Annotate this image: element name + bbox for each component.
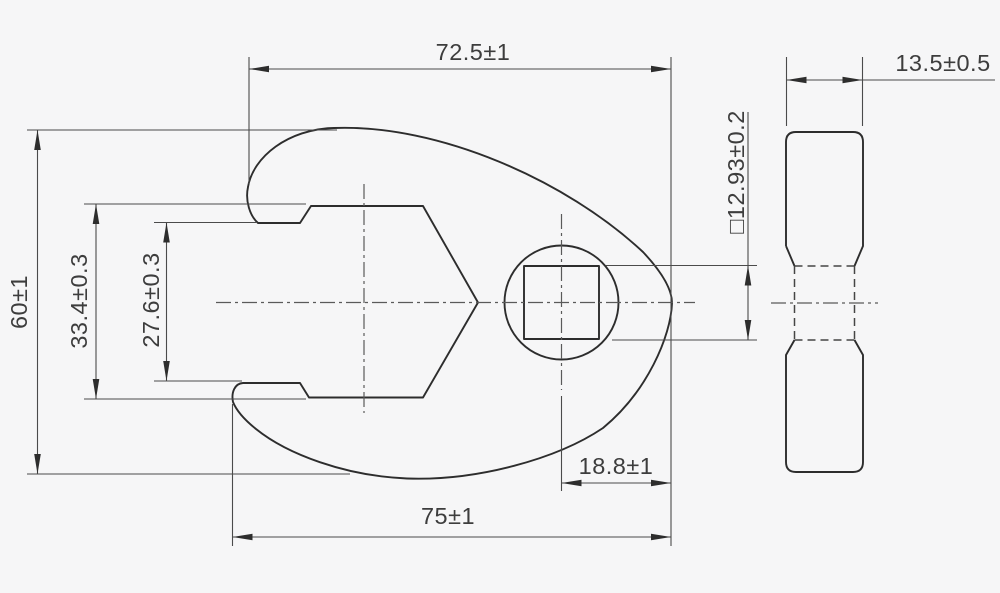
arrowhead-left: [787, 77, 807, 83]
dim-label-jaw-opening-wide: 33.4±0.3: [66, 253, 92, 348]
crowfoot-wrench-drawing: 72.5±1 75±1 60±1 33.4±0.3 27.6±0.3 □12.9…: [0, 0, 1000, 593]
wrench-outline-side-lower: [786, 340, 863, 472]
technical-drawing-page: 72.5±1 75±1 60±1 33.4±0.3 27.6±0.3 □12.9…: [0, 0, 1000, 593]
front-view: [216, 128, 695, 479]
dim-label-top-width: 72.5±1: [436, 39, 511, 65]
arrowhead-right: [651, 534, 671, 540]
dim-label-bottom-width: 75±1: [421, 503, 475, 529]
arrowhead-bottom: [163, 361, 170, 381]
arrowhead-left: [249, 66, 269, 72]
dim-label-overall-height: 60±1: [6, 275, 32, 329]
arrowhead-right: [843, 77, 863, 83]
wrench-outline-side-upper: [786, 132, 863, 266]
arrowhead-bottom: [34, 454, 41, 474]
arrowhead-left: [562, 480, 582, 486]
dimension-jaw-opening-wide: 33.4±0.3: [66, 204, 306, 399]
arrowhead-left: [233, 534, 253, 540]
arrowhead-top: [34, 130, 41, 150]
dimension-jaw-opening-narrow: 27.6±0.3: [138, 223, 256, 382]
arrowhead-top: [745, 266, 752, 286]
dimension-lines: [84, 204, 306, 399]
dimension-lines: [154, 223, 256, 382]
dim-label-thickness: 13.5±0.5: [895, 50, 990, 76]
arrowhead-right: [651, 480, 671, 486]
dim-label-drive-to-tip: 18.8±1: [579, 453, 654, 479]
dimension-thickness: 13.5±0.5: [787, 50, 996, 126]
arrowhead-top: [93, 204, 100, 224]
dim-label-jaw-opening-narrow: 27.6±0.3: [138, 252, 164, 347]
dim-label-square-drive: □12.93±0.2: [723, 110, 749, 234]
arrowhead-top: [163, 223, 170, 243]
arrowhead-bottom: [93, 379, 100, 399]
arrowhead-bottom: [745, 320, 752, 340]
arrowhead-right: [651, 66, 671, 72]
centerlines-front: [216, 184, 695, 413]
wrench-outline-front: [232, 128, 672, 479]
side-view: [771, 132, 878, 472]
dimension-square-drive: □12.93±0.2: [606, 110, 757, 340]
